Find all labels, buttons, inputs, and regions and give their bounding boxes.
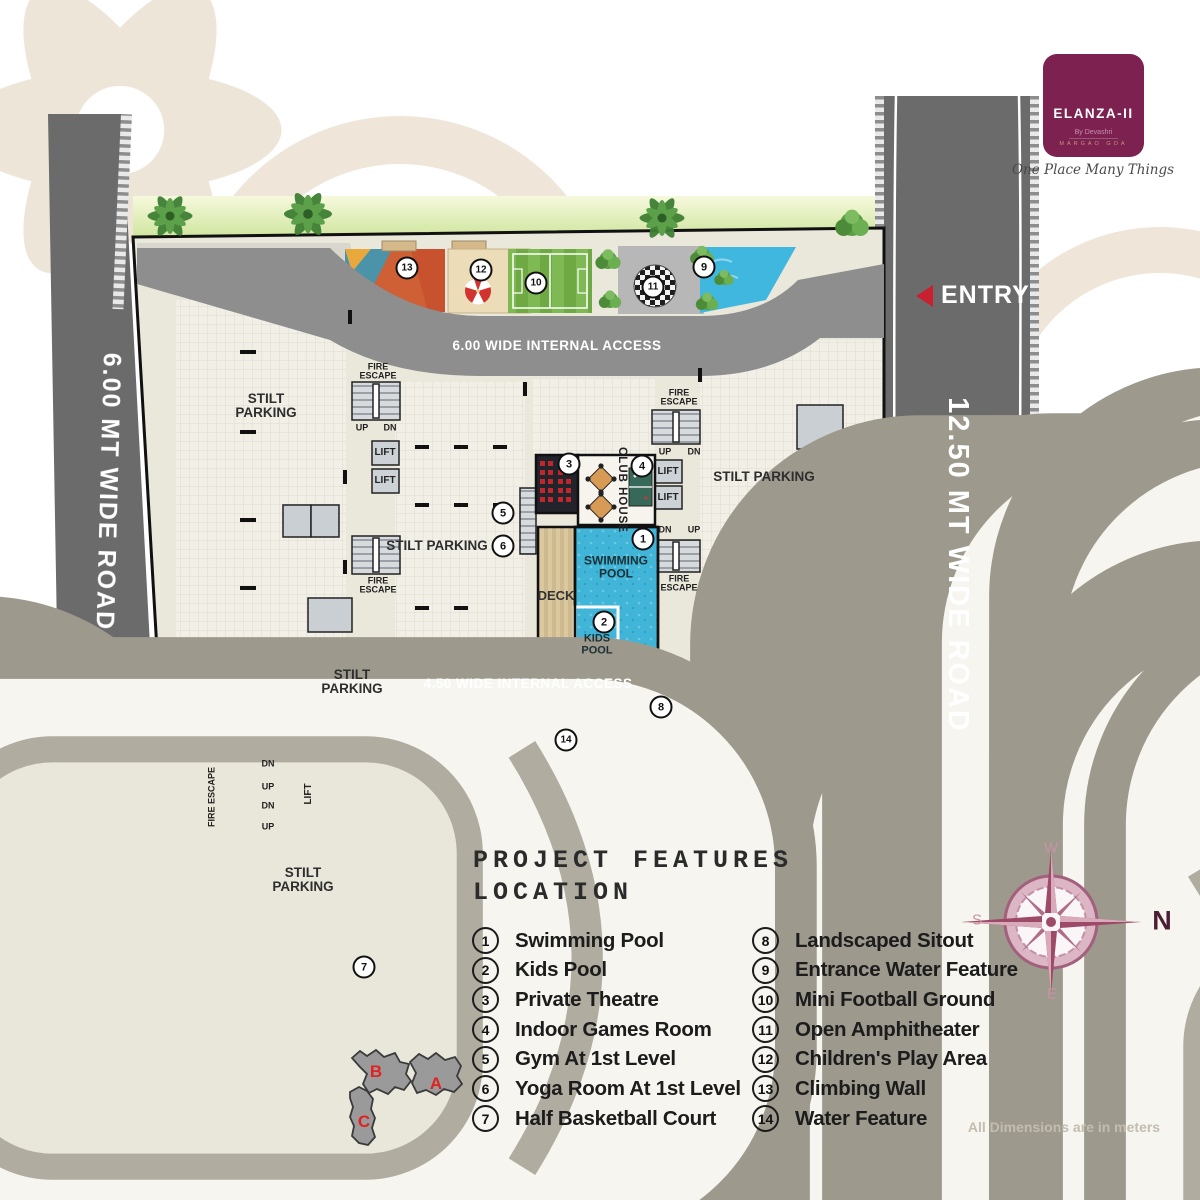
internal-access-bottom-label: 4.50 WIDE INTERNAL ACCESS (423, 677, 632, 691)
marker-swimming-pool: 1 (632, 528, 655, 551)
marker-indoor-games: 4 (631, 455, 654, 478)
brand-tagline: One Place Many Things (1012, 162, 1174, 178)
legend-item-number: 5 (472, 1046, 499, 1073)
legend-item-number: 4 (472, 1016, 499, 1043)
lift-label: LIFT (374, 448, 395, 459)
lift-label: LIFT (304, 783, 315, 804)
dn-label: DN (688, 447, 701, 456)
legend-item-label: Climbing Wall (795, 1077, 926, 1101)
brand-title: ELANZA-II (1043, 106, 1144, 121)
marker-yoga: 6 (492, 535, 515, 558)
legend-title: PROJECT FEATURES LOCATION (473, 845, 793, 909)
compass-west-label: W (1044, 840, 1058, 857)
stilt-parking-label: STILT PARKING (265, 866, 341, 894)
legend-item: 5 Gym At 1st Level (472, 1048, 741, 1071)
legend-item: 8 Landscaped Sitout (752, 929, 1018, 952)
marker-private-theatre: 3 (558, 453, 581, 476)
marker-play-area: 12 (470, 259, 493, 282)
up-label: UP (356, 423, 369, 432)
legend-item-label: Water Feature (795, 1107, 927, 1131)
lift-label: LIFT (374, 476, 395, 487)
kids-pool-label: KIDS POOL (575, 633, 619, 656)
keyplan-building-c: C (358, 1112, 370, 1132)
dimensions-footnote: All Dimensions are in meters (968, 1119, 1160, 1135)
brand-logo: ELANZA-II By Devashri MARGAO GOA (1043, 54, 1144, 157)
legend-item: 1 Swimming Pool (472, 929, 741, 952)
legend-item-number: 3 (472, 986, 499, 1013)
legend-column-left: 1 Swimming Pool 2 Kids Pool 3 Private Th… (472, 929, 741, 1137)
legend-item-label: Mini Football Ground (795, 988, 995, 1012)
marker-basketball: 7 (353, 956, 376, 979)
keyplan-building-b: B (370, 1062, 382, 1082)
lift-label: LIFT (657, 493, 678, 504)
fire-escape-label: FIRE ESCAPE (653, 389, 705, 408)
marker-water-feature: 14 (555, 729, 578, 752)
compass-east-label: E (1047, 986, 1057, 1003)
marker-amphitheater: 11 (642, 276, 665, 299)
compass-south-label: S (972, 912, 982, 929)
fire-escape-label: FIRE ESCAPE (352, 577, 404, 596)
legend-item-number: 9 (752, 957, 779, 984)
legend-item: 9 Entrance Water Feature (752, 959, 1018, 982)
legend-item: 2 Kids Pool (472, 959, 741, 982)
legend-item: 10 Mini Football Ground (752, 988, 1018, 1011)
dn-label: DN (659, 525, 672, 534)
legend-title-line2: LOCATION (473, 877, 793, 909)
legend-item-label: Swimming Pool (515, 929, 664, 953)
legend-item-label: Half Basketball Court (515, 1107, 716, 1131)
legend-item-number: 12 (752, 1046, 779, 1073)
up-label: UP (262, 782, 275, 791)
keyplan-building-a: A (430, 1074, 442, 1094)
mini-football-ground (508, 249, 592, 313)
up-label: UP (659, 447, 672, 456)
stilt-parking-label: STILT PARKING (713, 470, 815, 484)
compass-north-label: N (1152, 906, 1172, 937)
legend-item-number: 2 (472, 957, 499, 984)
legend-item-number: 8 (752, 927, 779, 954)
legend-item-label: Indoor Games Room (515, 1018, 712, 1042)
legend-item-label: Entrance Water Feature (795, 958, 1018, 982)
dn-label: DN (262, 801, 275, 810)
legend-item: 12 Children's Play Area (752, 1048, 1018, 1071)
brand-location: MARGAO GOA (1043, 141, 1144, 147)
legend-item-number: 6 (472, 1075, 499, 1102)
deck-label: DECK (538, 589, 575, 603)
legend-item-label: Open Amphitheater (795, 1018, 979, 1042)
legend-item: 11 Open Amphitheater (752, 1018, 1018, 1041)
stilt-parking-label: STILT PARKING (314, 668, 390, 696)
entry-arrow-icon (916, 285, 933, 307)
legend-item: 7 Half Basketball Court (472, 1107, 741, 1130)
entry-label: ENTRY (941, 281, 1030, 310)
dn-label: DN (384, 423, 397, 432)
entry-indicator: ENTRY (916, 281, 1030, 310)
legend-item-number: 14 (752, 1105, 779, 1132)
right-road-label: 12.50 MT WIDE ROAD (943, 397, 973, 733)
legend-item-number: 13 (752, 1075, 779, 1102)
brand-byline: By Devashri (1069, 129, 1119, 139)
legend-item-label: Children's Play Area (795, 1047, 987, 1071)
fire-escape-label: FIRE ESCAPE (653, 575, 705, 594)
fire-escape-label: FIRE ESCAPE (352, 363, 404, 382)
up-label: UP (688, 525, 701, 534)
legend-item-label: Private Theatre (515, 988, 659, 1012)
legend-column-right: 8 Landscaped Sitout 9 Entrance Water Fea… (752, 929, 1018, 1137)
marker-entrance-water: 9 (693, 256, 716, 279)
marker-gym: 5 (492, 502, 515, 525)
up-label: UP (262, 822, 275, 831)
marker-sitout: 8 (650, 696, 673, 719)
lift-label: LIFT (657, 467, 678, 478)
legend-item: 3 Private Theatre (472, 988, 741, 1011)
legend-item-label: Landscaped Sitout (795, 929, 973, 953)
marker-kids-pool: 2 (593, 611, 616, 634)
dn-label: DN (262, 759, 275, 768)
legend-item-label: Yoga Room At 1st Level (515, 1077, 741, 1101)
fire-escape-label: FIRE ESCAPE (207, 767, 216, 827)
legend-item-number: 1 (472, 927, 499, 954)
swimming-pool-label: SWIMMING POOL (576, 554, 656, 579)
legend-item-number: 11 (752, 1016, 779, 1043)
legend-item-label: Kids Pool (515, 958, 607, 982)
marker-climbing-wall: 13 (396, 257, 419, 280)
stilt-parking-label: STILT PARKING (386, 539, 488, 553)
legend-item: 13 Climbing Wall (752, 1077, 1018, 1100)
legend-title-line1: PROJECT FEATURES (473, 845, 793, 877)
legend-item: 4 Indoor Games Room (472, 1018, 741, 1041)
club-house-label: CLUB HOUSE (616, 447, 628, 533)
legend-item: 6 Yoga Room At 1st Level (472, 1077, 741, 1100)
stilt-parking-label: STILT PARKING (229, 392, 303, 420)
legend-item-number: 10 (752, 986, 779, 1013)
site-plan-poster: 6.00 MT WIDE ROAD 12.50 MT WIDE ROAD ENT… (0, 0, 1200, 1200)
legend-item-number: 7 (472, 1105, 499, 1132)
legend-item-label: Gym At 1st Level (515, 1047, 676, 1071)
marker-football: 10 (525, 272, 548, 295)
internal-access-top-label: 6.00 WIDE INTERNAL ACCESS (452, 339, 661, 353)
